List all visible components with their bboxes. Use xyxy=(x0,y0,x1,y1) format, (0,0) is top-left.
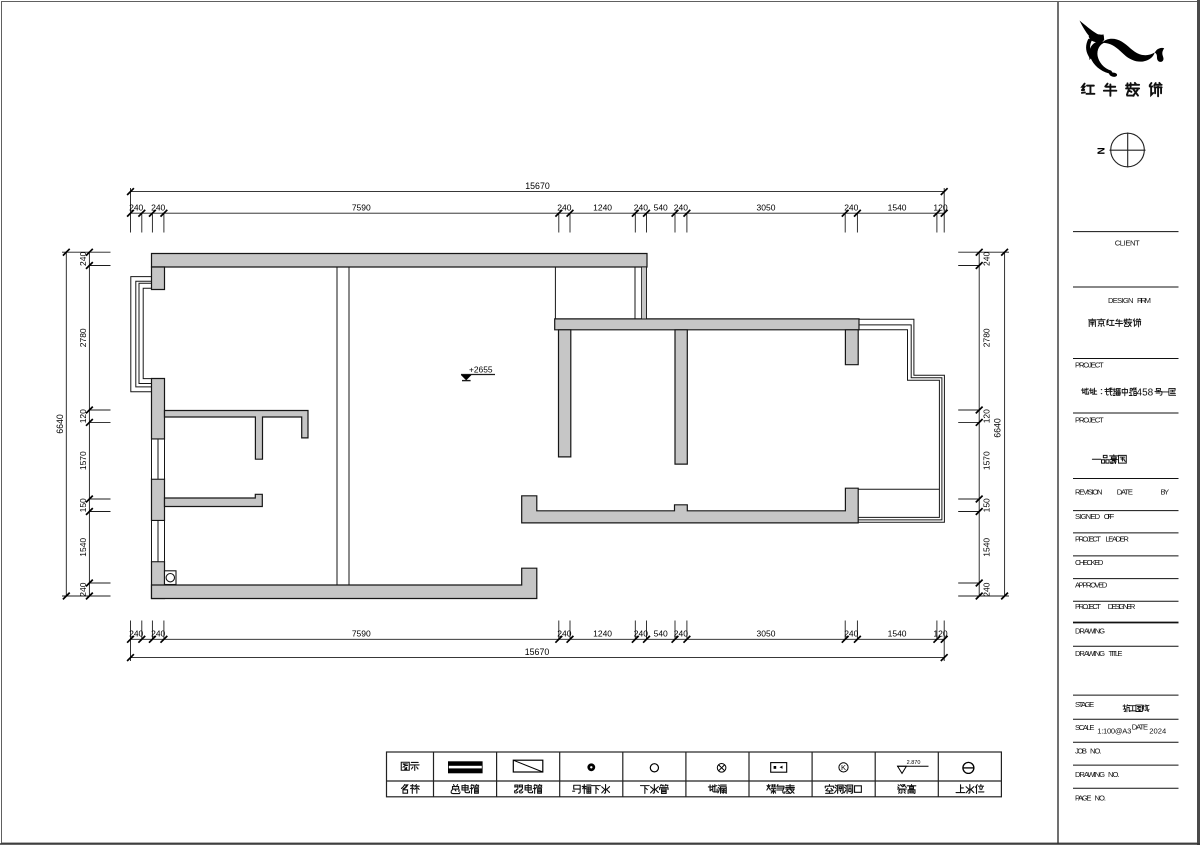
svg-text:240: 240 xyxy=(557,629,571,639)
svg-text:3050: 3050 xyxy=(757,203,776,213)
svg-text:STAGE: STAGE xyxy=(1075,700,1094,709)
svg-text:15670: 15670 xyxy=(525,647,550,657)
svg-text:240: 240 xyxy=(129,203,143,213)
svg-text:OFF: OFF xyxy=(1104,512,1115,521)
svg-text:PROJECT: PROJECT xyxy=(1075,361,1104,370)
svg-text:120: 120 xyxy=(78,409,88,423)
svg-text:1540: 1540 xyxy=(888,203,907,213)
svg-text:SIGNED: SIGNED xyxy=(1075,512,1101,521)
svg-text:TITLE: TITLE xyxy=(1109,649,1123,658)
svg-text:DATE: DATE xyxy=(1117,488,1133,497)
svg-text:120: 120 xyxy=(982,409,992,423)
svg-text:2.870: 2.870 xyxy=(907,760,921,766)
svg-text:CHECKED: CHECKED xyxy=(1075,558,1104,567)
svg-text:150: 150 xyxy=(78,498,88,512)
svg-text:540: 540 xyxy=(654,629,668,639)
svg-text:1540: 1540 xyxy=(78,538,88,557)
svg-text:K: K xyxy=(841,763,846,772)
svg-text:NO.: NO. xyxy=(1108,770,1120,779)
svg-text:240: 240 xyxy=(634,629,648,639)
svg-text:+2655: +2655 xyxy=(469,365,493,375)
svg-text:PAGE: PAGE xyxy=(1075,794,1092,803)
svg-text:1240: 1240 xyxy=(593,203,612,213)
svg-text:150: 150 xyxy=(982,498,992,512)
svg-text:7590: 7590 xyxy=(352,629,371,639)
svg-text:FIRM: FIRM xyxy=(1137,296,1151,305)
svg-text:DRAWING: DRAWING xyxy=(1075,649,1105,658)
svg-text:240: 240 xyxy=(674,629,688,639)
svg-text:240: 240 xyxy=(78,582,88,596)
svg-text:240: 240 xyxy=(844,203,858,213)
svg-text:DRAWING: DRAWING xyxy=(1075,627,1105,636)
svg-text:DRAWING: DRAWING xyxy=(1075,770,1105,779)
svg-text:2780: 2780 xyxy=(78,328,88,347)
svg-text:240: 240 xyxy=(151,629,165,639)
svg-text:PROJECT: PROJECT xyxy=(1075,416,1104,425)
svg-text:PROJECT: PROJECT xyxy=(1075,602,1101,611)
svg-text:N: N xyxy=(1097,147,1108,154)
svg-text:7590: 7590 xyxy=(352,203,371,213)
svg-text:240: 240 xyxy=(151,203,165,213)
svg-text:3050: 3050 xyxy=(757,629,776,639)
svg-text:NO.: NO. xyxy=(1095,794,1107,803)
svg-text:240: 240 xyxy=(129,629,143,639)
svg-text:2024: 2024 xyxy=(1149,727,1166,736)
svg-text:540: 540 xyxy=(654,203,668,213)
svg-text:240: 240 xyxy=(982,582,992,596)
svg-text:DESIGN: DESIGN xyxy=(1108,296,1134,305)
svg-text:BY: BY xyxy=(1161,488,1170,497)
svg-text:1240: 1240 xyxy=(593,629,612,639)
svg-text:DATE: DATE xyxy=(1132,723,1148,732)
svg-text:2780: 2780 xyxy=(982,328,992,347)
svg-text:120: 120 xyxy=(933,629,947,639)
svg-text:PROJECT: PROJECT xyxy=(1075,534,1101,543)
svg-text:240: 240 xyxy=(557,203,571,213)
svg-text:1570: 1570 xyxy=(982,451,992,470)
svg-text:LEADER: LEADER xyxy=(1105,534,1129,543)
svg-text:SCALE: SCALE xyxy=(1075,723,1095,732)
svg-text:1:100@A3: 1:100@A3 xyxy=(1097,727,1131,736)
svg-text:1540: 1540 xyxy=(982,538,992,557)
svg-text:REVISION: REVISION xyxy=(1075,488,1103,497)
svg-text:CLIENT: CLIENT xyxy=(1115,239,1140,248)
svg-text:240: 240 xyxy=(634,203,648,213)
svg-text:6640: 6640 xyxy=(993,418,1003,438)
svg-text:458: 458 xyxy=(1137,388,1154,399)
svg-text:JOB: JOB xyxy=(1075,747,1087,756)
svg-text:1570: 1570 xyxy=(78,451,88,470)
svg-text:APPROVED: APPROVED xyxy=(1075,581,1108,590)
svg-text:NO.: NO. xyxy=(1090,747,1102,756)
svg-text:240: 240 xyxy=(844,629,858,639)
svg-text:240: 240 xyxy=(674,203,688,213)
svg-text:240: 240 xyxy=(982,252,992,266)
svg-text:DESIGNER: DESIGNER xyxy=(1108,602,1136,611)
svg-text:15670: 15670 xyxy=(525,181,550,191)
svg-text:120: 120 xyxy=(933,203,947,213)
svg-text:1540: 1540 xyxy=(888,629,907,639)
svg-text:240: 240 xyxy=(78,252,88,266)
svg-text:6640: 6640 xyxy=(55,414,65,434)
